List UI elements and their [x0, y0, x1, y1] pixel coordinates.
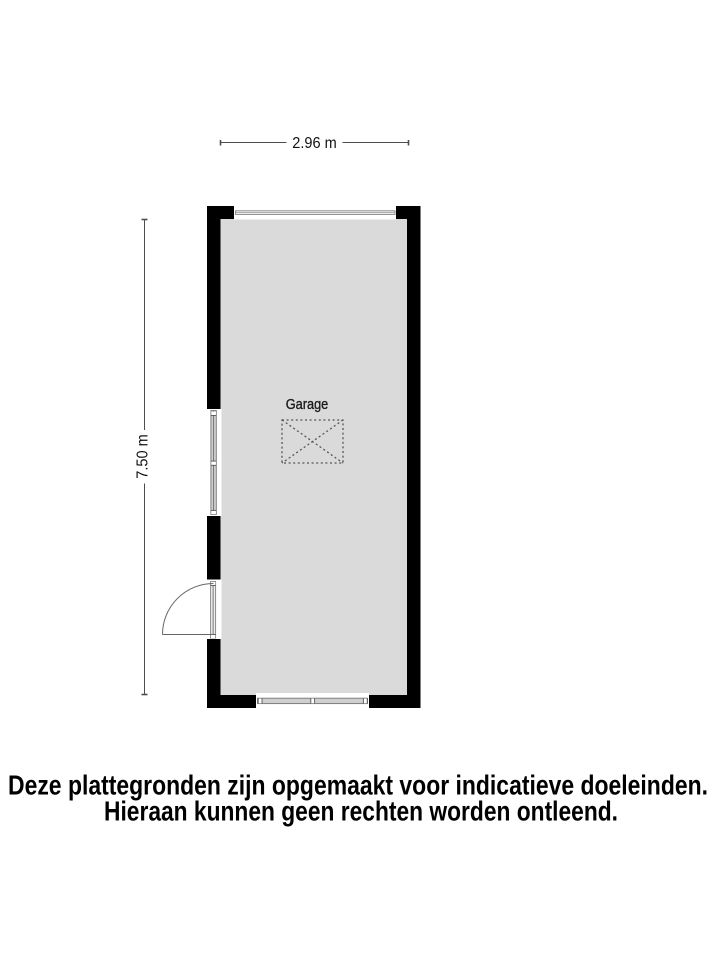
- svg-text:Hieraan kunnen geen rechten wo: Hieraan kunnen geen rechten worden ontle…: [104, 796, 618, 827]
- svg-text:2.96 m: 2.96 m: [292, 135, 337, 152]
- svg-text:Garage: Garage: [286, 397, 329, 413]
- svg-text:7.50 m: 7.50 m: [135, 434, 152, 479]
